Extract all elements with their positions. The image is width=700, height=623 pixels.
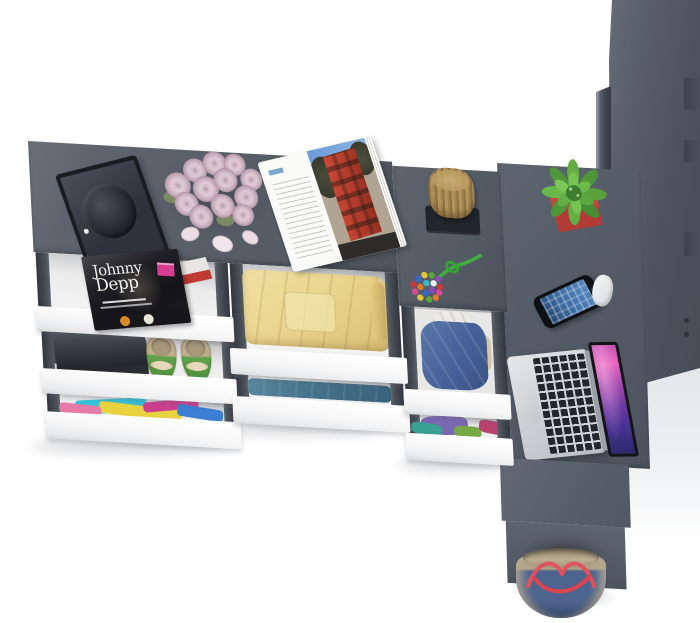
denim-drawer-contents [414, 309, 495, 394]
shelf-edge-notch [684, 78, 700, 110]
clothes-crimson [479, 418, 504, 435]
cactus-plant [535, 153, 612, 253]
shelf-edge-notch [684, 140, 700, 162]
hinge-dot [684, 318, 689, 323]
cover-magazine: Johnny Depp [81, 249, 191, 331]
denim-jacket [419, 320, 489, 392]
hinge-dot [684, 332, 689, 337]
cover-price-badge [157, 263, 175, 277]
wooden-stump [427, 167, 476, 220]
drawer-open-denim [401, 306, 508, 397]
scene: Johnny Depp [0, 0, 700, 623]
dresser-section: Johnny Depp [28, 141, 525, 498]
tote-bag-straps [514, 548, 608, 623]
laptop [506, 345, 644, 475]
shelf-edge-notch [684, 232, 700, 256]
drawer-open-blanket [230, 263, 402, 360]
tote-bag [514, 548, 608, 623]
cover-title-line2: Depp [94, 275, 146, 295]
yellow-blanket [242, 269, 391, 352]
drawer-front [406, 433, 514, 466]
background-wash-top [0, 0, 700, 150]
bead-necklace [402, 246, 491, 309]
cover-title: Johnny Depp [92, 261, 146, 294]
rose-petals [178, 221, 264, 260]
